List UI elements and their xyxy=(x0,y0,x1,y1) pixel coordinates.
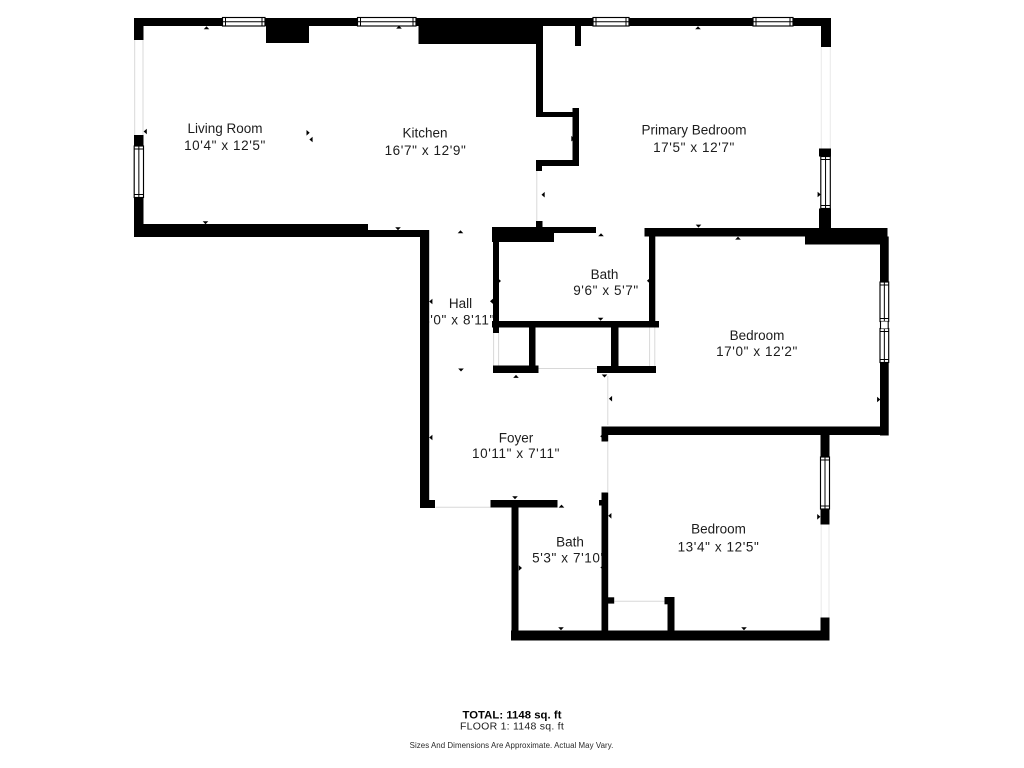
svg-text:5'3" x 7'10": 5'3" x 7'10" xyxy=(532,551,606,566)
svg-text:4'0" x 8'11": 4'0" x 8'11" xyxy=(422,313,495,328)
svg-text:9'6" x 5'7": 9'6" x 5'7" xyxy=(573,283,639,298)
svg-text:FLOOR 1: 1148 sq. ft: FLOOR 1: 1148 sq. ft xyxy=(460,721,564,733)
svg-text:Hall: Hall xyxy=(449,296,472,311)
svg-text:10'4" x 12'5": 10'4" x 12'5" xyxy=(184,138,266,153)
svg-text:13'4" x 12'5": 13'4" x 12'5" xyxy=(678,540,760,555)
svg-text:Living Room: Living Room xyxy=(187,121,262,136)
svg-text:Primary Bedroom: Primary Bedroom xyxy=(641,123,746,138)
svg-text:Sizes And Dimensions Are Appro: Sizes And Dimensions Are Approximate. Ac… xyxy=(410,741,614,750)
svg-text:16'7" x 12'9": 16'7" x 12'9" xyxy=(385,143,467,158)
svg-text:Bedroom: Bedroom xyxy=(730,328,785,343)
svg-text:Kitchen: Kitchen xyxy=(402,126,447,141)
svg-text:Bath: Bath xyxy=(556,535,584,550)
svg-text:Foyer: Foyer xyxy=(499,431,534,446)
svg-text:17'5" x 12'7": 17'5" x 12'7" xyxy=(653,140,735,155)
svg-text:17'0" x 12'2": 17'0" x 12'2" xyxy=(716,344,798,359)
svg-text:Bath: Bath xyxy=(591,267,619,282)
svg-text:10'11" x 7'11": 10'11" x 7'11" xyxy=(472,446,560,461)
svg-text:Bedroom: Bedroom xyxy=(691,522,746,537)
